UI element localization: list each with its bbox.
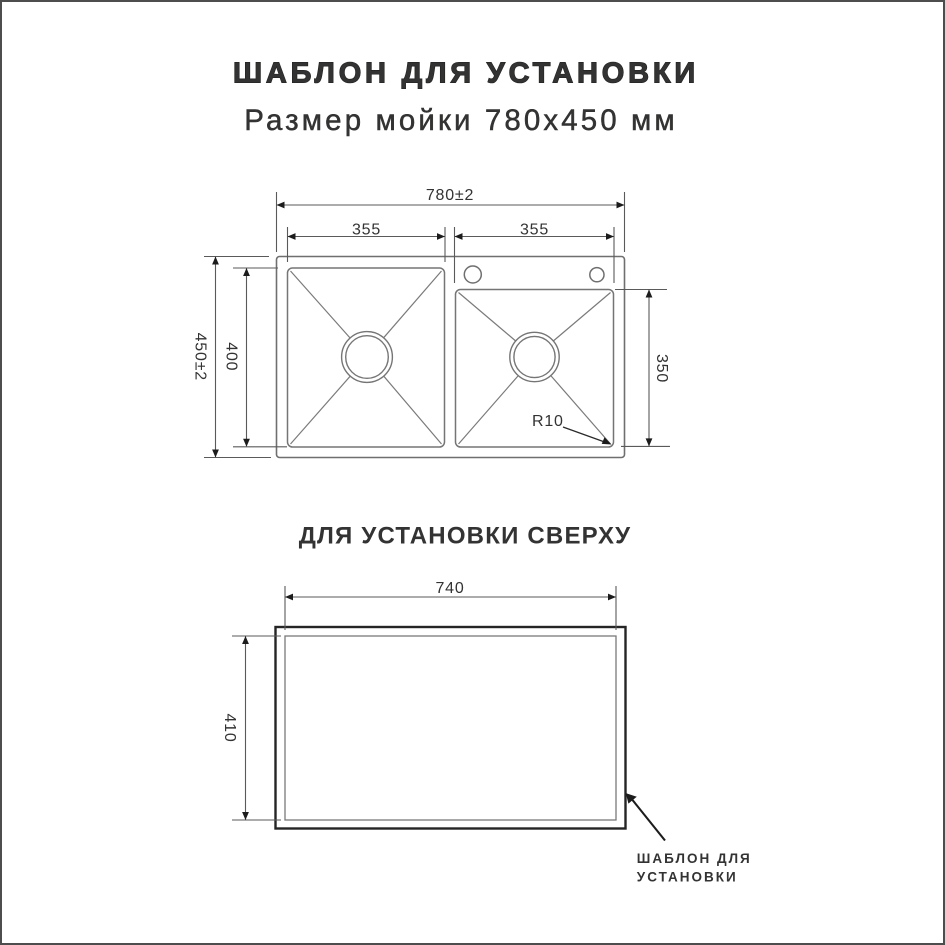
svg-text:355: 355	[520, 222, 549, 239]
svg-text:450±2: 450±2	[192, 333, 209, 381]
svg-text:ШАБЛОН ДЛЯ УСТАНОВКИ: ШАБЛОН ДЛЯ УСТАНОВКИ	[233, 58, 699, 90]
svg-text:410: 410	[221, 713, 238, 742]
svg-text:ДЛЯ УСТАНОВКИ СВЕРХУ: ДЛЯ УСТАНОВКИ СВЕРХУ	[299, 523, 632, 550]
svg-text:R10: R10	[532, 413, 564, 430]
svg-text:Размер мойки 780х450 мм: Размер мойки 780х450 мм	[244, 104, 678, 137]
svg-text:740: 740	[435, 580, 464, 597]
svg-text:УСТАНОВКИ: УСТАНОВКИ	[637, 869, 738, 884]
svg-text:400: 400	[222, 342, 239, 371]
svg-text:ШАБЛОН ДЛЯ: ШАБЛОН ДЛЯ	[637, 851, 752, 866]
svg-text:780±2: 780±2	[426, 187, 474, 204]
svg-text:355: 355	[352, 222, 381, 239]
svg-text:350: 350	[653, 354, 670, 383]
